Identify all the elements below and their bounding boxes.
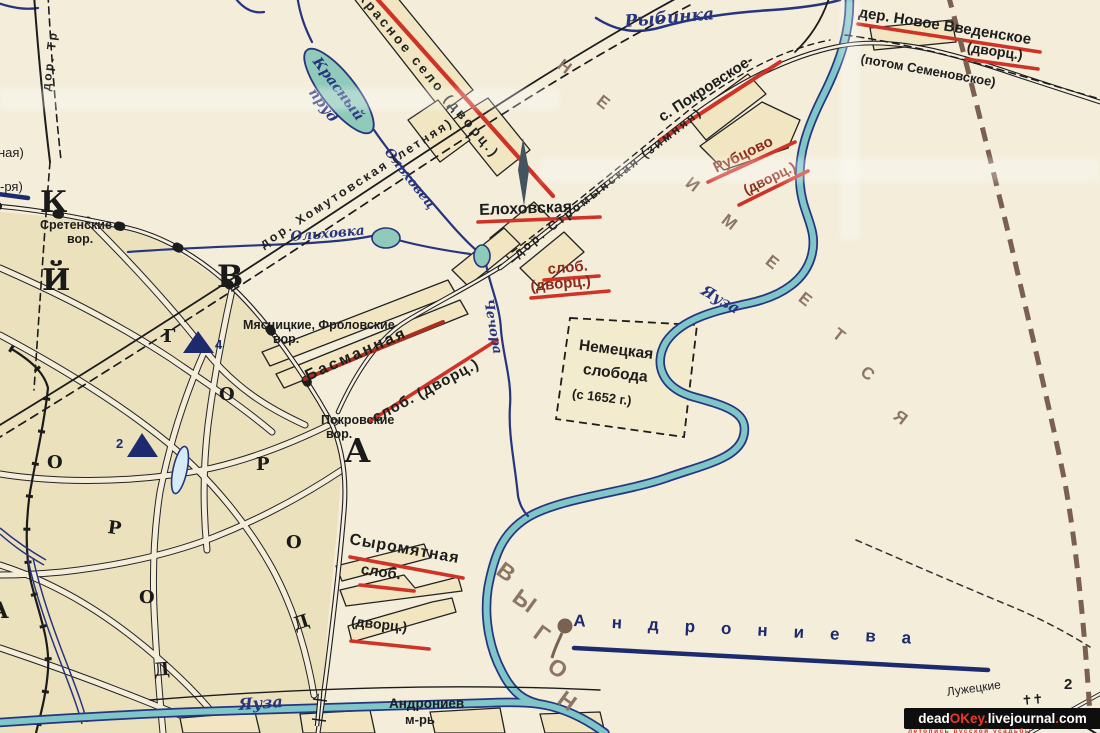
edge-label-naya: ная) xyxy=(0,146,24,159)
district-letter-k: К xyxy=(40,188,67,218)
district-letter-d2: Д xyxy=(153,661,171,680)
district-letter-o2: О xyxy=(286,534,302,552)
gate-label-pokrovskie-1: Покровские xyxy=(321,414,394,427)
wm-com: com xyxy=(1059,711,1087,726)
gate-label-sretenskie-1: Сретенские xyxy=(40,219,112,232)
watermark-tagline: летопись русской усадьбы xyxy=(908,728,1032,733)
river-label-yauza-lower: Яуза xyxy=(238,694,283,713)
gate-label-sretenskie-2: вор. xyxy=(67,233,93,246)
wm-lj: livejournal xyxy=(988,711,1056,726)
district-letter-a: А xyxy=(344,434,371,467)
crosses-icon: ✝✝ xyxy=(1021,692,1044,707)
district-letter-v: В xyxy=(217,262,243,293)
label-elokhovskaya: Елоховская xyxy=(479,200,572,219)
boundary-number: 2 xyxy=(1064,677,1072,692)
label-andronievsky-2: м-рь xyxy=(405,713,435,726)
district-letter-g: Г xyxy=(163,328,175,346)
partial-underline xyxy=(0,194,28,198)
district-letter-o4: О xyxy=(139,589,155,607)
district-letter-a2: А xyxy=(0,600,9,622)
historical-map: Рыбинка Красный пруд Ольховец Ольховка Я… xyxy=(0,0,1100,733)
edge-label-rya: -ря) xyxy=(0,180,23,193)
district-letter-y: Й xyxy=(42,266,70,296)
label-andronievsky-1: Андрониев xyxy=(389,697,464,711)
triangle4-label: 4 xyxy=(215,338,222,351)
wm-dead: dead xyxy=(918,711,950,726)
district-letter-o1: О xyxy=(219,386,235,404)
boundary-dashed xyxy=(948,0,1091,733)
district-letter-o3: О xyxy=(47,454,63,472)
watermark-link[interactable]: deadOKey.livejournal.com xyxy=(904,708,1100,729)
gate-label-myasnitskie-2: вор. xyxy=(273,333,299,346)
district-letter-r1: Р xyxy=(256,456,270,474)
triangle2-label: 2 xyxy=(116,437,123,450)
district-letter-r2: Р xyxy=(106,519,122,539)
andronieva-underline xyxy=(574,648,988,670)
monastery-dot xyxy=(558,619,573,634)
wm-okey: OKey xyxy=(950,711,984,726)
gate-label-myasnitskie-1: Мясницкие, Фроловские xyxy=(243,319,395,332)
